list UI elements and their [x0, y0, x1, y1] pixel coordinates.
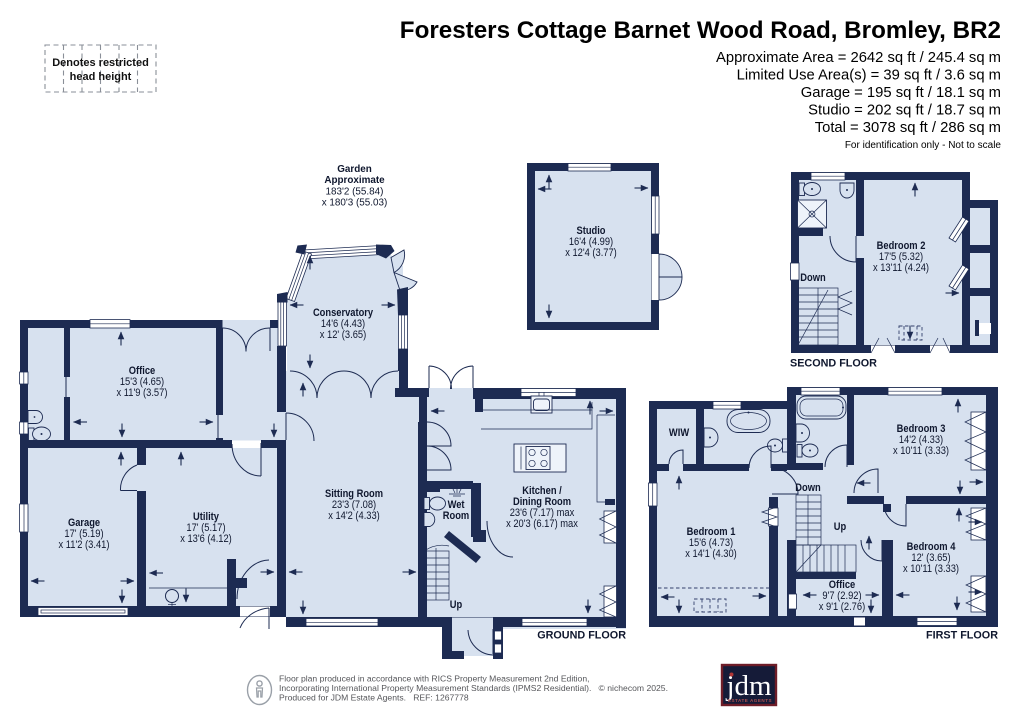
svg-text:Studio = 202 sq ft / 18.7 sq m: Studio = 202 sq ft / 18.7 sq m	[808, 103, 1001, 119]
svg-text:Down: Down	[795, 482, 820, 494]
svg-text:x 12' (3.65): x 12' (3.65)	[320, 329, 366, 341]
svg-text:Incorporating International Pr: Incorporating International Property Mea…	[279, 683, 668, 693]
svg-text:Room: Room	[443, 510, 469, 522]
svg-text:Limited Use Area(s) = 39 sq ft: Limited Use Area(s) = 39 sq ft / 3.6 sq …	[737, 68, 1001, 84]
svg-text:Total = 3078 sq ft / 286 sq m: Total = 3078 sq ft / 286 sq m	[815, 120, 1001, 136]
svg-text:Approximate Area = 2642 sq ft: Approximate Area = 2642 sq ft / 245.4 sq…	[716, 50, 1001, 66]
svg-text:x 10'11 (3.33): x 10'11 (3.33)	[903, 563, 959, 575]
svg-text:x 180'3 (55.03): x 180'3 (55.03)	[322, 198, 388, 209]
svg-text:Up: Up	[450, 599, 462, 611]
svg-text:Garage = 195 sq ft / 18.1 sq m: Garage = 195 sq ft / 18.1 sq m	[801, 85, 1001, 101]
svg-text:x 10'11 (3.33): x 10'11 (3.33)	[893, 445, 949, 457]
svg-text:GROUND FLOOR: GROUND FLOOR	[537, 630, 626, 642]
svg-text:head height: head height	[70, 71, 132, 83]
svg-text:Approximate: Approximate	[324, 175, 385, 186]
svg-text:x 14'2 (4.33): x 14'2 (4.33)	[328, 510, 380, 522]
svg-text:Produced for JDM Estate Agents: Produced for JDM Estate Agents. REF: 126…	[279, 693, 469, 703]
svg-text:x 11'2 (3.41): x 11'2 (3.41)	[59, 539, 110, 551]
svg-text:183'2 (55.84): 183'2 (55.84)	[326, 187, 384, 198]
svg-text:Foresters Cottage Barnet Wood: Foresters Cottage Barnet Wood Road, Brom…	[400, 17, 1001, 44]
svg-text:x 20'3 (6.17) max: x 20'3 (6.17) max	[506, 518, 578, 530]
svg-text:x 9'1 (2.76): x 9'1 (2.76)	[819, 601, 865, 613]
svg-text:x 13'6 (4.12): x 13'6 (4.12)	[180, 533, 232, 545]
svg-text:Floor plan produced in accorda: Floor plan produced in accordance with R…	[279, 674, 590, 684]
svg-text:ESTATE AGENTS: ESTATE AGENTS	[728, 698, 772, 703]
svg-text:x 12'4 (3.77): x 12'4 (3.77)	[565, 247, 617, 259]
svg-text:x 11'9 (3.57): x 11'9 (3.57)	[117, 387, 168, 399]
svg-text:Up: Up	[834, 521, 846, 533]
svg-text:SECOND FLOOR: SECOND FLOOR	[790, 358, 877, 370]
svg-text:x 13'11 (4.24): x 13'11 (4.24)	[873, 262, 929, 274]
svg-text:WIW: WIW	[669, 427, 690, 439]
svg-text:FIRST FLOOR: FIRST FLOOR	[926, 630, 998, 642]
svg-text:For identification only - Not: For identification only - Not to scale	[845, 140, 1002, 151]
svg-text:Down: Down	[800, 272, 825, 284]
svg-text:x 14'1 (4.30): x 14'1 (4.30)	[685, 548, 737, 560]
svg-text:Denotes restricted: Denotes restricted	[52, 57, 149, 69]
svg-text:Garden: Garden	[337, 164, 372, 175]
